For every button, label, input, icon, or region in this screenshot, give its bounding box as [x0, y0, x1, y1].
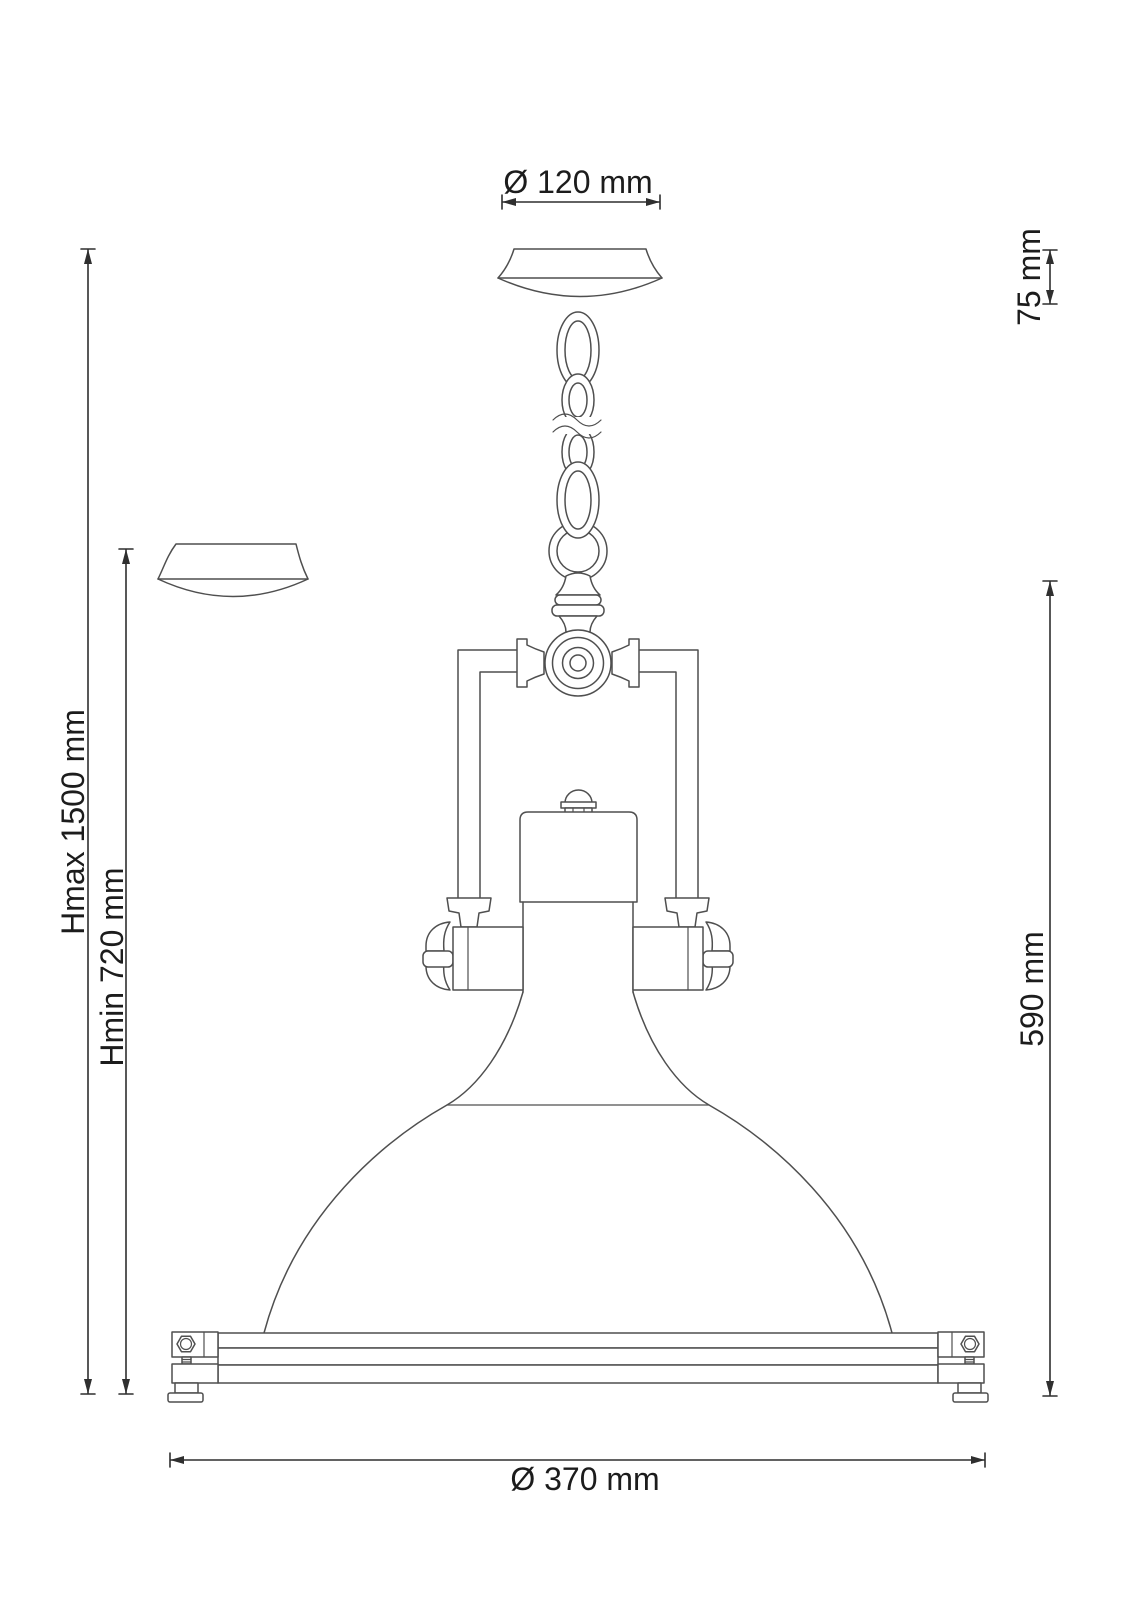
dimension-body-height: 590 mm: [1014, 581, 1057, 1396]
ceiling-canopy-min-position: [158, 544, 308, 597]
dimension-shade-diameter: Ø 370 mm: [170, 1453, 985, 1497]
dimension-hmin: Hmin 720 mm: [94, 549, 133, 1394]
dimension-canopy-diameter: Ø 120 mm: [502, 164, 660, 209]
yoke-foot-left: [447, 898, 491, 927]
canopy-diameter-label: Ø 120 mm: [503, 164, 652, 200]
shade-rim: [168, 1332, 988, 1402]
hmax-label: Hmax 1500 mm: [55, 709, 91, 935]
ceiling-canopy: [498, 249, 662, 297]
wing-nut-right: [703, 922, 733, 990]
canopy-height-label: 75 mm: [1011, 228, 1047, 326]
clamp-block-left: [453, 927, 523, 990]
dimension-hmax: Hmax 1500 mm: [55, 249, 95, 1394]
wing-nut-left: [423, 922, 453, 990]
rim-bracket-left: [168, 1332, 218, 1402]
pendant-lamp-dimension-drawing: Ø 120 mm 75 mm Hmax 1500 mm Hmin 720 mm …: [0, 0, 1131, 1600]
suspension-chain: [549, 312, 607, 580]
yoke-spool-right: [612, 639, 639, 687]
hmin-label: Hmin 720 mm: [94, 867, 130, 1066]
dimension-canopy-height: 75 mm: [1011, 228, 1057, 326]
yoke-hub: [545, 630, 611, 696]
drawing-canvas: Ø 120 mm 75 mm Hmax 1500 mm Hmin 720 mm …: [0, 0, 1131, 1600]
body-height-label: 590 mm: [1014, 931, 1050, 1047]
clamp-assembly: [423, 922, 733, 990]
clamp-block-right: [633, 927, 703, 990]
lamp-shade: [264, 992, 892, 1333]
yoke-spool-left: [517, 639, 544, 687]
dome-nut: [561, 790, 596, 814]
lamp-body: [520, 790, 637, 992]
yoke-foot-right: [665, 898, 709, 927]
shade-diameter-label: Ø 370 mm: [510, 1461, 659, 1497]
finial: [552, 573, 604, 632]
rim-bracket-right: [938, 1332, 988, 1402]
